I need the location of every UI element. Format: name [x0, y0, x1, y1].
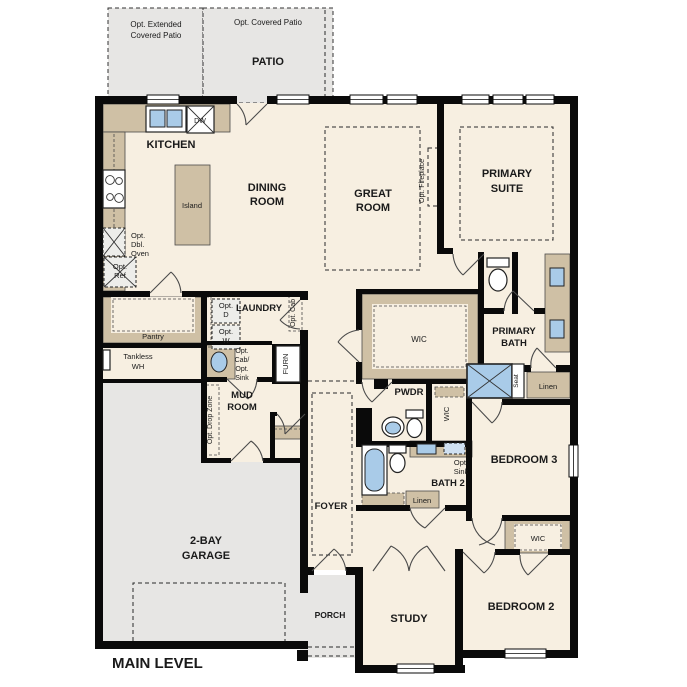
- wic-bedroom2-label: WIC: [531, 534, 546, 543]
- opt-sink-label: Opt.Sink: [454, 458, 469, 476]
- opt-fireplace-label: Opt. Fireplace: [419, 159, 426, 203]
- wall: [182, 291, 305, 297]
- wall: [437, 248, 453, 254]
- wall: [495, 549, 520, 555]
- wall: [201, 291, 207, 343]
- wall: [356, 289, 484, 294]
- wall: [355, 567, 363, 673]
- laundry-label: LAUNDRY: [236, 303, 283, 314]
- primary-sink-2: [550, 320, 564, 338]
- wall: [570, 96, 578, 658]
- pantry-floor: [111, 297, 195, 333]
- wall: [346, 567, 363, 575]
- foyer-label: FOYER: [315, 501, 348, 512]
- wall: [556, 365, 570, 372]
- floor-plan-drawing: Opt. ExtendedCovered Patio Opt. Covered …: [0, 0, 687, 687]
- wc-toilet-tank: [487, 258, 509, 267]
- sink-bowl-left: [150, 110, 165, 127]
- bath2-label: BATH 2: [431, 478, 465, 489]
- wall: [300, 330, 308, 593]
- kitchen-label: KITCHEN: [147, 139, 196, 151]
- wic-bedroom3-label: WIC: [442, 406, 451, 421]
- wic-bedroom3-shelf: [435, 387, 464, 397]
- wall: [270, 412, 275, 458]
- wall: [445, 505, 472, 511]
- wall: [272, 344, 276, 384]
- laundry-sink: [211, 352, 227, 372]
- wall: [534, 308, 545, 314]
- opt-ref-label: Opt.Ref: [113, 262, 127, 280]
- mud-room-label: MUDROOM: [227, 390, 257, 413]
- pantry-label: Pantry: [142, 332, 164, 341]
- wall: [300, 291, 308, 300]
- primary-sink-1: [550, 268, 564, 286]
- covered-patio-label: Opt. Covered Patio: [234, 18, 303, 27]
- wall: [201, 341, 272, 345]
- bath2-sink: [417, 444, 436, 454]
- wall: [548, 549, 570, 555]
- wall: [95, 96, 103, 649]
- wall: [502, 515, 578, 521]
- wall: [201, 377, 227, 382]
- wall: [466, 383, 472, 515]
- wall: [257, 377, 272, 382]
- bath2-opt-sink: [444, 443, 465, 454]
- pwdr-toilet-bowl: [407, 419, 422, 438]
- wall: [356, 379, 362, 384]
- pwdr-label: PWDR: [394, 387, 423, 398]
- porch-label: PORCH: [315, 610, 346, 620]
- wall: [466, 515, 472, 521]
- furnace-label: FURN: [281, 354, 290, 375]
- linen-primary-label: Linen: [539, 382, 557, 391]
- bath2-tub: [365, 449, 384, 491]
- pwdr-sink-bowl: [386, 422, 401, 434]
- main-level-label: MAIN LEVEL: [112, 655, 203, 672]
- island-label: Island: [182, 201, 202, 210]
- dw-label: DW: [194, 118, 206, 125]
- floor-plan-page: Opt. ExtendedCovered Patio Opt. Covered …: [0, 0, 687, 687]
- pwdr-toilet-tank: [406, 410, 423, 418]
- linen-hall-label: Linen: [413, 496, 431, 505]
- wall: [455, 549, 463, 673]
- wall: [270, 412, 277, 416]
- bedroom2-label: BEDROOM 2: [488, 601, 555, 613]
- wall: [95, 291, 150, 297]
- seat-label: Seat: [513, 374, 520, 388]
- wall: [437, 104, 444, 252]
- wall: [356, 408, 372, 444]
- wall: [478, 308, 504, 314]
- wc-toilet-bowl: [489, 269, 507, 291]
- wall: [356, 289, 362, 330]
- wall: [95, 379, 205, 383]
- opt-drop-zone-label: Opt. Drop Zone: [207, 396, 214, 444]
- study-label: STUDY: [390, 613, 428, 625]
- wall: [502, 399, 578, 405]
- bath2-toilet-tank: [389, 445, 406, 453]
- cooktop: [103, 170, 125, 208]
- tankless-water-heater: [103, 350, 110, 370]
- patio-label: PATIO: [252, 56, 284, 68]
- wall: [512, 252, 518, 314]
- wall: [356, 505, 410, 511]
- wall: [95, 641, 308, 649]
- porch-column: [297, 650, 308, 661]
- wic-primary-label: WIC: [411, 335, 427, 344]
- wall: [95, 343, 205, 348]
- wall: [426, 383, 432, 445]
- opt-cab-label: Opt. Cab: [290, 299, 297, 327]
- bath2-toilet-bowl: [390, 454, 405, 473]
- bedroom3-label: BEDROOM 3: [491, 454, 558, 466]
- wall: [201, 458, 231, 463]
- sink-bowl-right: [167, 110, 182, 127]
